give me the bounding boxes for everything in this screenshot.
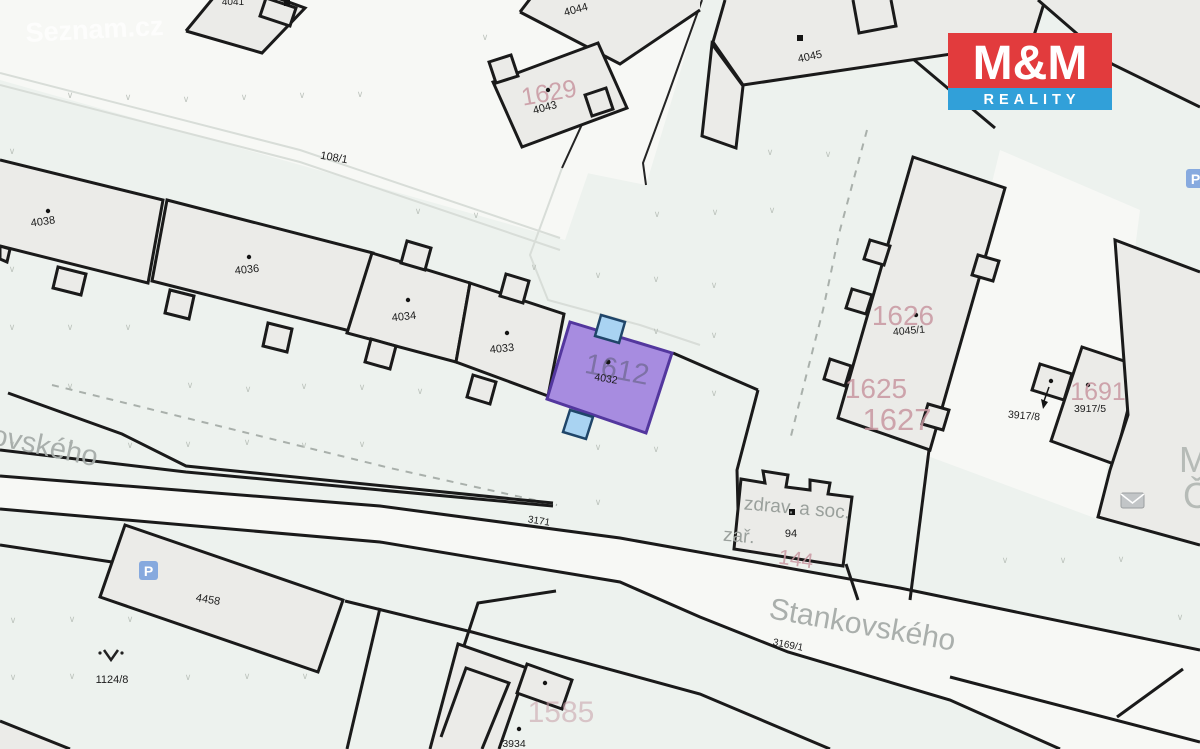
vegetation-mark: ∨: [1002, 555, 1009, 565]
big-parcel-number: 1585: [528, 696, 595, 729]
vegetation-mark: ∨: [67, 322, 74, 332]
logo-text-bottom: REALITY: [983, 92, 1080, 108]
definition-dot: [797, 35, 803, 41]
parcel-label: 4034: [391, 310, 417, 324]
building-porch: [467, 375, 496, 404]
vegetation-mark: ∨: [711, 388, 718, 398]
vegetation-mark: ∨: [711, 330, 718, 340]
vegetation-mark: ∨: [69, 614, 76, 624]
vegetation-mark: ∨: [125, 322, 132, 332]
clipped-label-m: M: [1179, 439, 1200, 480]
vegetation-mark: ∨: [531, 262, 538, 272]
big-parcel-number: 144: [777, 546, 815, 574]
vegetation-mark: ∨: [127, 614, 134, 624]
vegetation-mark: ∨: [711, 280, 718, 290]
vegetation-mark: ∨: [595, 270, 602, 280]
vegetation-mark: ∨: [241, 92, 248, 102]
building-porch: [365, 339, 396, 369]
building-porch: [0, 246, 10, 262]
definition-dot: [284, 0, 290, 6]
vegetation-mark: ∨: [9, 264, 16, 274]
vegetation-mark: ∨: [417, 386, 424, 396]
vegetation-mark: ∨: [9, 146, 16, 156]
building-porch: [585, 88, 613, 116]
building-porch: [263, 323, 292, 352]
definition-dot: [406, 298, 410, 302]
svg-text:P: P: [144, 563, 153, 579]
definition-dot: [247, 255, 251, 259]
vegetation-mark: ∨: [301, 381, 308, 391]
definition-dot: [1049, 379, 1053, 383]
vegetation-mark: ∨: [244, 437, 251, 447]
vegetation-mark: ∨: [1118, 554, 1125, 564]
svg-text:P: P: [1191, 171, 1200, 187]
definition-dot: [543, 681, 547, 685]
vegetation-mark: ∨: [125, 92, 132, 102]
definition-dot: [46, 209, 50, 213]
map-canvas[interactable]: ∨∨∨∨∨∨∨∨∨∨∨∨∨∨∨∨∨∨∨∨∨∨∨∨∨∨∨∨∨∨∨∨∨∨∨∨∨∨∨∨…: [0, 0, 1200, 749]
parcel-label: 3917/5: [1074, 403, 1106, 415]
vegetation-mark: ∨: [825, 149, 832, 159]
vegetation-mark: ∨: [10, 615, 17, 625]
big-parcel-number: 1691: [1070, 378, 1126, 406]
vegetation-mark: ∨: [653, 274, 660, 284]
blue-annex: [563, 410, 593, 439]
vegetation-mark: ∨: [10, 672, 17, 682]
parking-icon: P: [1186, 169, 1200, 188]
vegetation-mark: ∨: [654, 209, 661, 219]
vegetation-mark: ∨: [415, 206, 422, 216]
building-porch: [401, 241, 431, 270]
vegetation-mark: ∨: [595, 442, 602, 452]
vegetation-mark: ∨: [359, 439, 366, 449]
envelope-icon: [1121, 493, 1144, 508]
vegetation-mark: ∨: [473, 210, 480, 220]
vegetation-mark: ∨: [767, 147, 774, 157]
vegetation-mark: ∨: [185, 439, 192, 449]
clipped-label-c: Č: [1183, 475, 1200, 516]
parcel-label: 94: [785, 528, 797, 540]
vegetation-mark: ∨: [69, 671, 76, 681]
vegetation-mark: ∨: [185, 672, 192, 682]
big-parcel-number: 1625: [845, 373, 907, 404]
big-parcel-number: 1627: [863, 402, 932, 437]
parcel-label: 4036: [234, 263, 260, 277]
vegetation-mark: ∨: [653, 444, 660, 454]
building-porch: [489, 55, 518, 83]
parking-icon: P: [139, 561, 158, 580]
vegetation-mark: ∨: [9, 322, 16, 332]
cadastral-map[interactable]: ∨∨∨∨∨∨∨∨∨∨∨∨∨∨∨∨∨∨∨∨∨∨∨∨∨∨∨∨∨∨∨∨∨∨∨∨∨∨∨∨…: [0, 0, 1200, 749]
vegetation-mark: ∨: [482, 32, 489, 42]
vegetation-mark: ∨: [299, 90, 306, 100]
building-porch: [165, 290, 194, 319]
definition-dot: [517, 727, 521, 731]
vegetation-mark: ∨: [187, 380, 194, 390]
vegetation-mark: ∨: [302, 671, 309, 681]
vegetation-mark: ∨: [357, 89, 364, 99]
building-porch: [864, 240, 890, 265]
vegetation-mark: ∨: [127, 440, 134, 450]
vegetation-mark: ∨: [712, 207, 719, 217]
facility-label: zař.: [722, 525, 755, 549]
parcel-label: 4041: [222, 0, 245, 8]
mm-reality-logo: M&M REALITY: [948, 33, 1112, 110]
vegetation-mark: ∨: [769, 205, 776, 215]
building-porch: [846, 289, 872, 314]
vegetation-mark: ∨: [359, 382, 366, 392]
vegetation-mark: ∨: [1177, 612, 1184, 622]
parcel-label: 3934: [502, 738, 526, 749]
parcel-label: 4033: [489, 342, 515, 356]
building-porch: [500, 274, 529, 303]
vegetation-mark: ∨: [1060, 555, 1067, 565]
vegetation-mark: ∨: [245, 384, 252, 394]
vegetation-mark: ∨: [653, 326, 660, 336]
vegetation-mark: ∨: [301, 440, 308, 450]
logo-text-top: M&M: [973, 37, 1088, 90]
vegetation-mark: ∨: [595, 497, 602, 507]
parcel-label: 1124/8: [96, 674, 129, 686]
definition-dot: [505, 331, 509, 335]
building-porch: [972, 255, 999, 281]
vegetation-mark: ∨: [67, 381, 74, 391]
vegetation-mark: ∨: [183, 94, 190, 104]
vegetation-mark: ∨: [67, 90, 74, 100]
vegetation-mark: ∨: [244, 671, 251, 681]
